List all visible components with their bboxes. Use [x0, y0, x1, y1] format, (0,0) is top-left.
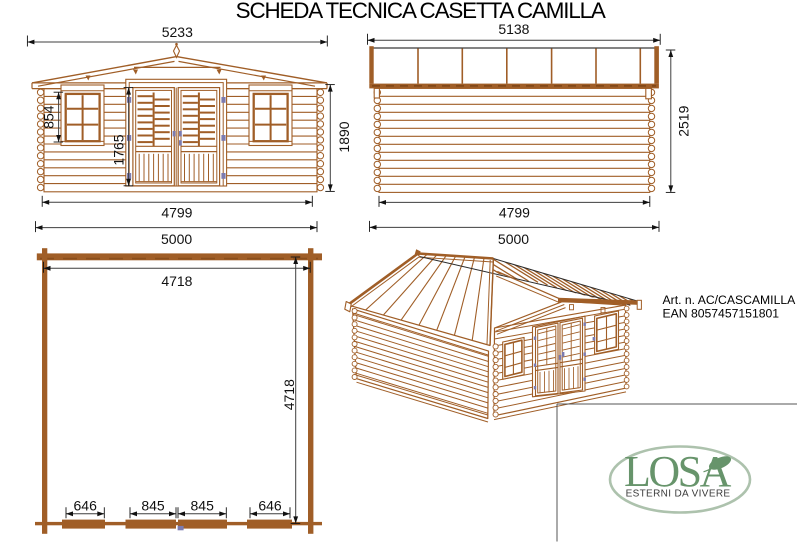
- svg-text:5233: 5233: [162, 24, 193, 40]
- svg-text:1765: 1765: [111, 134, 127, 165]
- svg-text:2519: 2519: [676, 105, 692, 136]
- svg-text:4718: 4718: [161, 273, 192, 289]
- svg-text:5000: 5000: [161, 231, 192, 247]
- svg-text:ESTERNI DA VIVERE: ESTERNI DA VIVERE: [626, 488, 731, 499]
- svg-text:845: 845: [191, 497, 215, 513]
- svg-text:4799: 4799: [499, 205, 530, 221]
- svg-text:646: 646: [74, 497, 98, 513]
- svg-text:646: 646: [258, 497, 282, 513]
- svg-text:SCHEDA TECNICA CASETTA CAMILLA: SCHEDA TECNICA CASETTA CAMILLA: [236, 0, 606, 23]
- svg-text:854: 854: [41, 105, 57, 129]
- svg-text:EAN 8057457151801: EAN 8057457151801: [663, 306, 780, 320]
- svg-text:1890: 1890: [336, 121, 352, 152]
- svg-text:845: 845: [141, 497, 165, 513]
- svg-text:5138: 5138: [498, 21, 529, 37]
- svg-text:5000: 5000: [498, 231, 529, 247]
- svg-text:4718: 4718: [281, 379, 297, 410]
- svg-text:4799: 4799: [161, 205, 192, 221]
- svg-text:Art. n. AC/CASCAMILLA: Art. n. AC/CASCAMILLA: [663, 293, 797, 307]
